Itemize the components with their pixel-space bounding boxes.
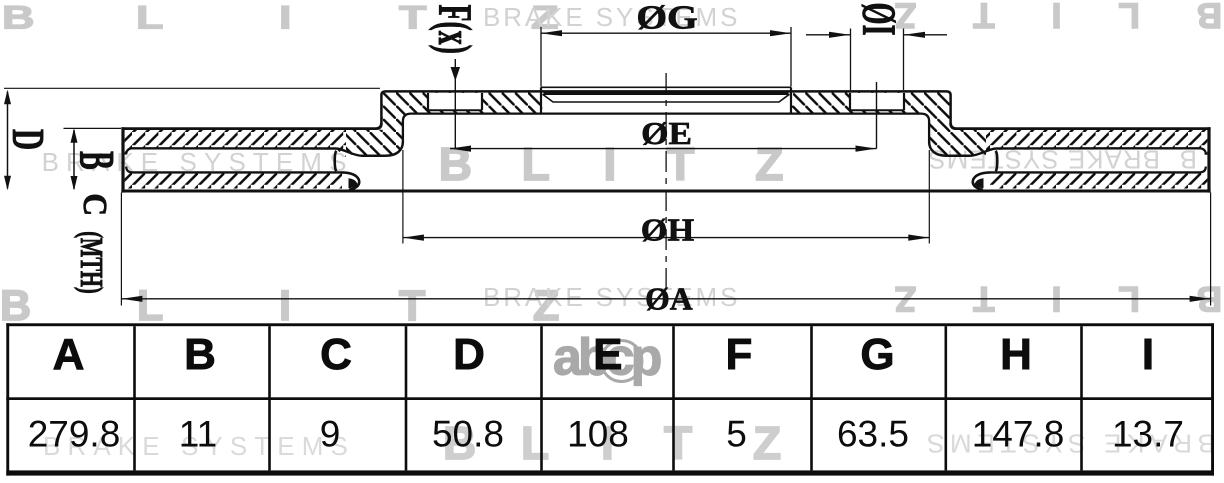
svg-text:C: C [320,330,352,379]
svg-text:F: F [726,330,753,379]
svg-text:I: I [604,138,617,190]
svg-text:I: I [279,282,291,330]
svg-text:279.8: 279.8 [28,413,121,454]
svg-text:9: 9 [320,413,341,454]
svg-text:C: C [75,193,112,216]
svg-text:D: D [453,330,485,379]
svg-text:F(x): F(x) [428,5,481,54]
svg-text:B: B [2,1,34,37]
svg-text:T: T [664,417,692,469]
svg-text:L: L [522,138,550,190]
svg-text:Z: Z [755,138,783,190]
svg-text:ØG: ØG [636,0,697,36]
svg-text:L: L [137,282,163,330]
svg-text:50.8: 50.8 [432,413,504,454]
svg-text:E: E [593,330,622,379]
svg-text:L: L [521,417,549,469]
svg-text:I: I [279,1,291,37]
svg-text:63.5: 63.5 [837,413,909,454]
svg-text:ØI: ØI [852,3,906,36]
svg-text:13.7: 13.7 [1112,413,1184,454]
svg-text:T: T [399,282,425,330]
svg-text:D: D [2,129,52,150]
svg-text:B: B [69,151,125,170]
svg-text:B: B [184,330,216,379]
svg-text:147.8: 147.8 [972,413,1065,454]
svg-text:ØH: ØH [641,214,695,249]
svg-text:B: B [0,282,31,330]
svg-text:I: I [1142,330,1154,379]
svg-text:A: A [53,330,85,379]
svg-text:H: H [1000,330,1032,379]
svg-text:L: L [136,1,163,37]
svg-text:BRAKE SYSTEMS: BRAKE SYSTEMS [483,282,740,312]
svg-text:5: 5 [726,413,747,454]
svg-text:G: G [860,330,894,379]
svg-text:T: T [399,1,427,37]
svg-text:ØA: ØA [645,282,693,317]
svg-text:108: 108 [567,413,629,454]
svg-text:(MTH): (MTH) [74,231,110,294]
svg-text:BRAKE SYSTEMS: BRAKE SYSTEMS [483,2,740,32]
svg-text:Z: Z [753,417,781,469]
svg-text:11: 11 [179,413,217,454]
